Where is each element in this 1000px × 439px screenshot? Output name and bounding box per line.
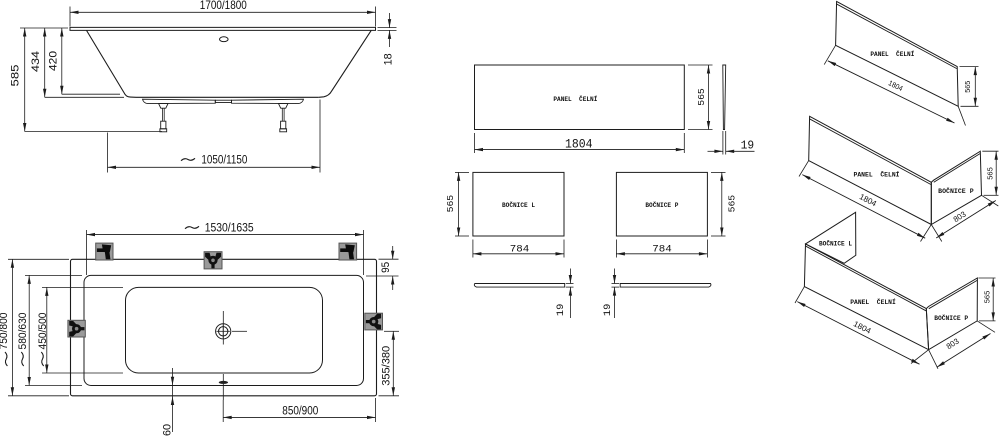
svg-text:580/630: 580/630 <box>17 313 29 350</box>
svg-text:1530/1635: 1530/1635 <box>205 223 254 235</box>
svg-text:355/380: 355/380 <box>381 346 393 386</box>
svg-text:1804: 1804 <box>565 137 593 151</box>
svg-text:PANEL ČELNÍ: PANEL ČELNÍ <box>870 51 914 58</box>
svg-text:420: 420 <box>48 51 60 71</box>
svg-text:BOČNICE L: BOČNICE L <box>819 238 852 247</box>
svg-text:PANEL ČELNÍ: PANEL ČELNÍ <box>553 94 597 104</box>
svg-text:565: 565 <box>445 195 456 213</box>
svg-text:19: 19 <box>741 140 755 153</box>
svg-text:565: 565 <box>963 81 972 93</box>
svg-text:750/800: 750/800 <box>0 313 10 350</box>
svg-text:784: 784 <box>652 244 672 256</box>
svg-text:565: 565 <box>726 195 737 213</box>
svg-text:19: 19 <box>556 304 567 317</box>
svg-text:BOČNICE P: BOČNICE P <box>934 313 968 322</box>
svg-text:585: 585 <box>10 65 22 87</box>
svg-text:565: 565 <box>696 88 707 106</box>
svg-text:PANEL ČELNÍ: PANEL ČELNÍ <box>850 297 896 306</box>
svg-text:1050/1150: 1050/1150 <box>201 154 247 166</box>
svg-text:1804: 1804 <box>858 192 879 208</box>
svg-text:784: 784 <box>510 244 530 256</box>
svg-text:18: 18 <box>383 53 395 65</box>
svg-text:1700/1800: 1700/1800 <box>200 0 247 12</box>
svg-text:60: 60 <box>162 424 174 436</box>
svg-text:1804: 1804 <box>852 319 873 336</box>
svg-text:PANEL ČELNÍ: PANEL ČELNÍ <box>854 169 900 178</box>
svg-text:850/900: 850/900 <box>282 406 318 418</box>
svg-text:450/500: 450/500 <box>37 313 49 350</box>
svg-text:BOČNICE P: BOČNICE P <box>645 202 678 209</box>
svg-text:BOČNICE P: BOČNICE P <box>938 186 974 195</box>
svg-text:565: 565 <box>985 167 994 180</box>
svg-text:95: 95 <box>380 262 392 273</box>
svg-text:434: 434 <box>30 51 42 72</box>
svg-text:565: 565 <box>982 291 991 304</box>
svg-text:19: 19 <box>603 304 614 317</box>
svg-text:BOČNICE L: BOČNICE L <box>502 202 535 209</box>
